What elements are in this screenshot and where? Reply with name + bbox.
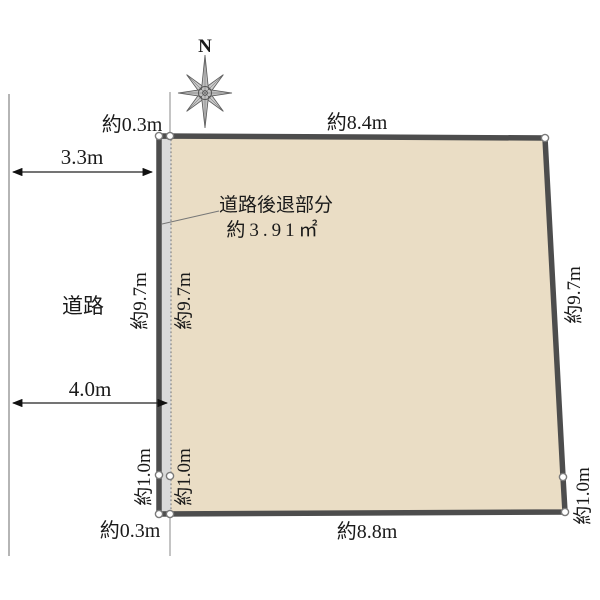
road-width-existing-label: 3.3m	[61, 145, 104, 169]
vertex-marker	[541, 134, 548, 141]
vertex-marker	[561, 508, 568, 515]
plot-right-lower-label: 約1.0m	[572, 467, 594, 525]
vertex-marker	[166, 510, 173, 517]
setback-top-width-label: 約0.3m	[102, 113, 163, 136]
plot-left-lower-outer-label: 約1.0m	[133, 448, 155, 506]
plot-left-lower-inner-label: 約1.0m	[173, 448, 195, 506]
vertex-marker	[166, 472, 173, 479]
setback-bottom-width-label: 約0.3m	[100, 519, 161, 542]
plot-left-inner-edge-label: 約9.7m	[173, 272, 195, 330]
plot-top-edge-label: 約8.4m	[327, 111, 388, 134]
vertex-marker	[155, 510, 162, 517]
plot-parcel	[159, 136, 565, 514]
compass-north-label: N	[198, 36, 212, 57]
road-width-widened-label: 4.0m	[69, 377, 112, 401]
diagram-canvas: 約0.3m 約8.4m 3.3m 道路 4.0m 道路後退部分 約3.91㎡ 約…	[0, 0, 600, 600]
plot-bottom-edge-label: 約8.8m	[337, 520, 398, 543]
plot-right-edge-label: 約9.7m	[563, 266, 585, 324]
vertex-marker	[155, 471, 162, 478]
vertex-marker	[559, 473, 566, 480]
setback-note-title: 道路後退部分	[219, 194, 333, 216]
plot-left-outer-edge-label: 約9.7m	[129, 272, 151, 330]
land-plot-diagram: 約0.3m 約8.4m 3.3m 道路 4.0m 道路後退部分 約3.91㎡ 約…	[0, 0, 600, 600]
vertex-marker	[155, 132, 162, 139]
road-label: 道路	[62, 294, 104, 318]
setback-note-area: 約3.91㎡	[226, 218, 321, 241]
compass-rose: N	[178, 36, 232, 128]
vertex-marker	[166, 132, 173, 139]
